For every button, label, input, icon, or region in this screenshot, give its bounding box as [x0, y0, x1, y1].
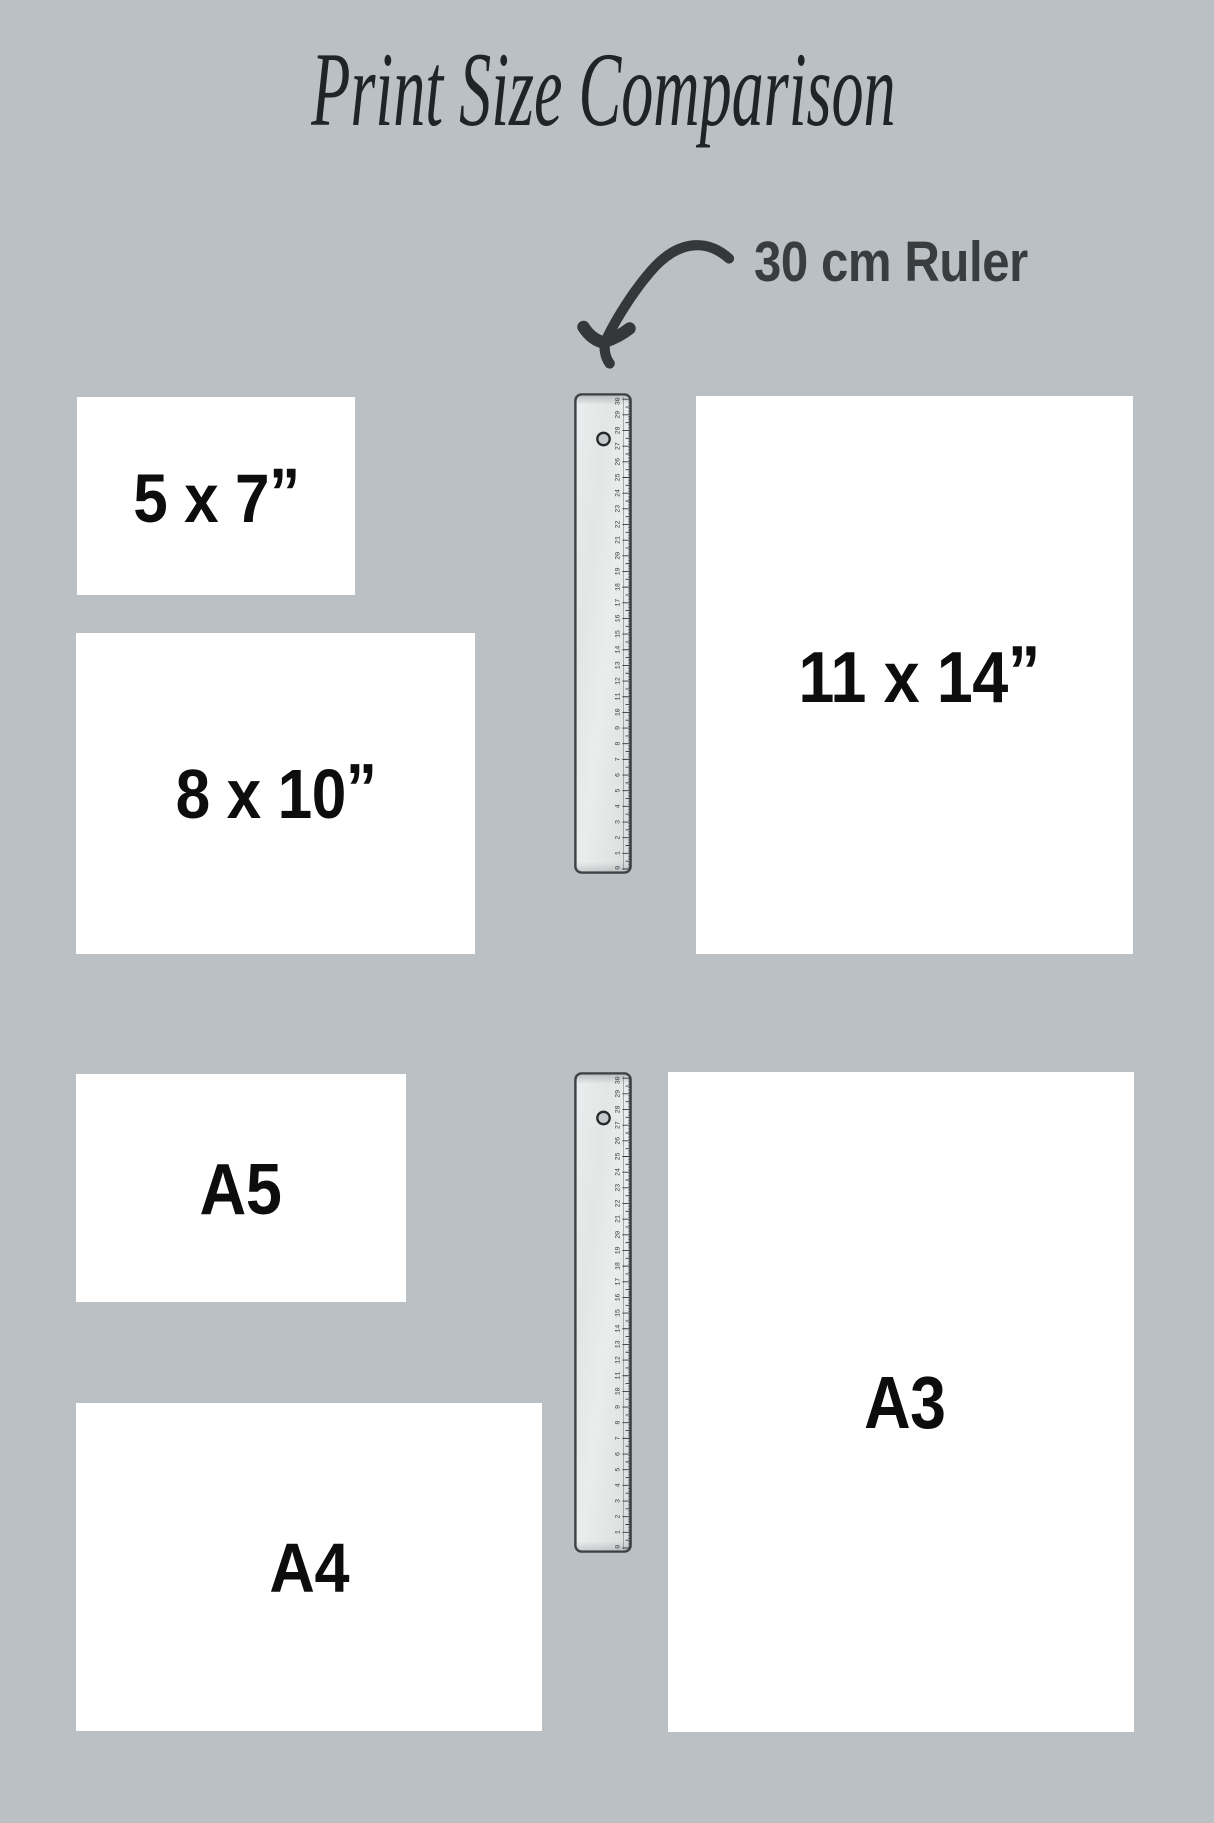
svg-text:8: 8	[615, 742, 623, 746]
svg-text:6: 6	[615, 773, 623, 777]
svg-text:7: 7	[615, 1436, 623, 1440]
svg-text:15: 15	[615, 630, 623, 638]
svg-text:26: 26	[615, 458, 623, 466]
svg-text:21: 21	[615, 536, 623, 544]
svg-text:23: 23	[615, 505, 623, 513]
svg-text:9: 9	[615, 726, 623, 730]
svg-text:0: 0	[615, 1545, 623, 1549]
svg-text:6: 6	[615, 1452, 623, 1456]
svg-text:29: 29	[615, 411, 623, 419]
svg-text:8: 8	[615, 1421, 623, 1425]
svg-text:27: 27	[615, 1121, 623, 1129]
svg-text:3: 3	[615, 1499, 623, 1503]
svg-text:11: 11	[615, 693, 623, 701]
svg-text:18: 18	[615, 583, 623, 591]
svg-text:1: 1	[615, 1530, 623, 1534]
svg-text:9: 9	[615, 1405, 623, 1409]
svg-text:4: 4	[615, 804, 623, 808]
svg-text:22: 22	[615, 520, 623, 528]
svg-text:17: 17	[615, 1278, 623, 1286]
svg-text:16: 16	[615, 1293, 623, 1301]
svg-text:20: 20	[615, 1231, 623, 1239]
svg-text:28: 28	[615, 1106, 623, 1114]
svg-text:29: 29	[615, 1090, 623, 1098]
svg-text:26: 26	[615, 1137, 623, 1145]
svg-text:19: 19	[615, 1246, 623, 1254]
svg-text:24: 24	[615, 1168, 623, 1176]
svg-text:10: 10	[615, 708, 623, 716]
svg-text:17: 17	[615, 599, 623, 607]
svg-text:25: 25	[615, 474, 623, 482]
svg-text:24: 24	[615, 489, 623, 497]
svg-text:15: 15	[615, 1309, 623, 1317]
svg-text:18: 18	[615, 1262, 623, 1270]
svg-text:5: 5	[615, 789, 623, 793]
svg-text:22: 22	[615, 1199, 623, 1207]
svg-text:10: 10	[615, 1387, 623, 1395]
svg-text:30: 30	[615, 397, 623, 405]
svg-text:25: 25	[615, 1153, 623, 1161]
svg-text:4: 4	[615, 1483, 623, 1487]
svg-text:30: 30	[615, 1076, 623, 1084]
svg-text:19: 19	[615, 567, 623, 575]
svg-text:2: 2	[615, 836, 623, 840]
svg-text:13: 13	[615, 1340, 623, 1348]
svg-text:1: 1	[615, 851, 623, 855]
svg-text:12: 12	[615, 677, 623, 685]
svg-text:12: 12	[615, 1356, 623, 1364]
svg-text:16: 16	[615, 614, 623, 622]
svg-text:3: 3	[615, 820, 623, 824]
svg-text:14: 14	[615, 646, 623, 654]
svg-text:5: 5	[615, 1468, 623, 1472]
svg-text:20: 20	[615, 552, 623, 560]
svg-text:14: 14	[615, 1325, 623, 1333]
svg-text:28: 28	[615, 427, 623, 435]
svg-text:23: 23	[615, 1184, 623, 1192]
svg-text:0: 0	[615, 866, 623, 870]
svg-text:27: 27	[615, 442, 623, 450]
svg-text:13: 13	[615, 661, 623, 669]
svg-text:7: 7	[615, 757, 623, 761]
svg-text:2: 2	[615, 1515, 623, 1519]
svg-text:21: 21	[615, 1215, 623, 1223]
svg-text:11: 11	[615, 1372, 623, 1380]
